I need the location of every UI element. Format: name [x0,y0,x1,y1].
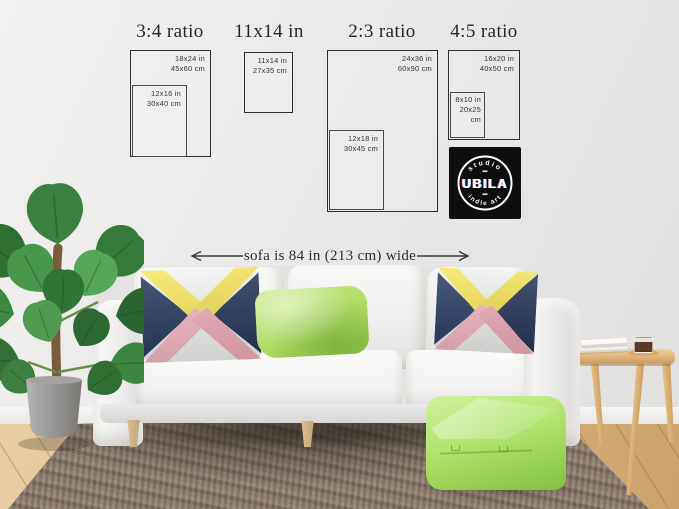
size-frame-label: 12x16 in30x40 cm [147,89,181,109]
plant-pot [26,380,82,438]
right-arrow-icon [415,249,475,263]
pouf-stitch [499,446,508,452]
monstera-plant [0,182,144,458]
pouf-stitch [451,445,460,451]
size-frame-label: 11x14 in27x35 cm [253,56,287,76]
pillow-geometric-left [140,267,261,363]
pouf-top-face [426,396,566,490]
pouf [426,396,566,490]
size-frame-label: 12x18 in30x45 cm [344,134,378,154]
size-frame-8x10: 8x10 in20x25 cm [450,92,485,138]
size-frame-12x16: 12x16 in30x40 cm [132,85,187,157]
size-guide-header-4-5: 4:5 ratio [414,21,554,43]
sofa-width-text: sofa is 84 in (213 cm) wide [244,248,416,265]
logo-dash-top [483,171,488,172]
logo-name-text: UBILA [462,177,508,191]
size-frame-label: 24x36 in60x90 cm [398,54,432,74]
pot-rim [26,376,82,384]
pillow-green [254,285,369,359]
left-arrow-icon [185,249,245,263]
pot-shadow [18,437,90,451]
size-frame-label: 8x10 in20x25 cm [451,95,481,125]
size-frame-12x18: 12x18 in30x45 cm [329,130,384,210]
product-photo: 3:4 ratio 11x14 in 2:3 ratio 4:5 ratio 1… [0,0,679,509]
pillow-geometric-right [434,267,538,354]
candle-jar [634,337,653,353]
size-frame-label: 16x20 in40x50 cm [480,54,514,74]
brand-logo: studio UBILA UBILA UBILA indie art [449,147,521,219]
logo-dash-bottom [483,194,488,195]
size-frame-11x14: 11x14 in27x35 cm [244,52,293,113]
size-frame-label: 18x24 in45x60 cm [171,54,205,74]
